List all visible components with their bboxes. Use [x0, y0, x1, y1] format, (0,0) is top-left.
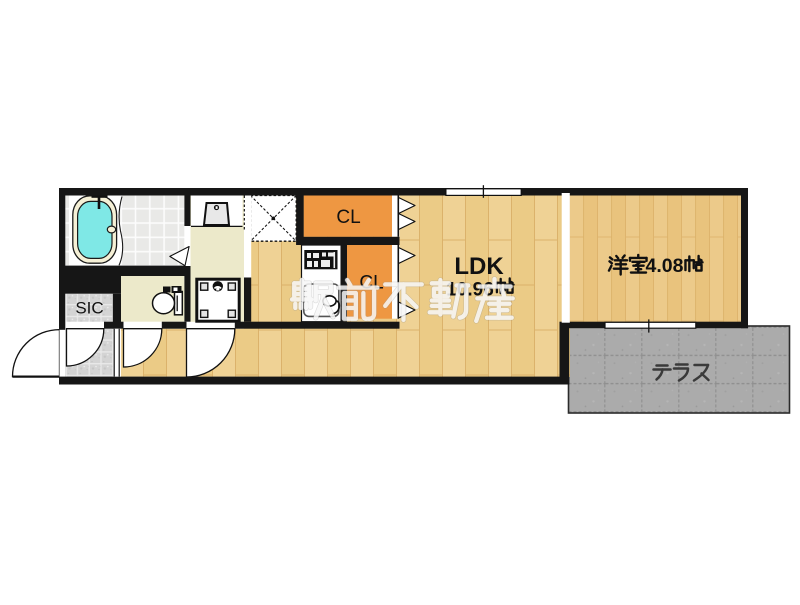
svg-text:4.08: 4.08 [646, 255, 684, 277]
svg-text:SIC: SIC [75, 299, 103, 318]
svg-text:CL: CL [336, 207, 360, 228]
svg-text:LDK: LDK [454, 253, 504, 280]
